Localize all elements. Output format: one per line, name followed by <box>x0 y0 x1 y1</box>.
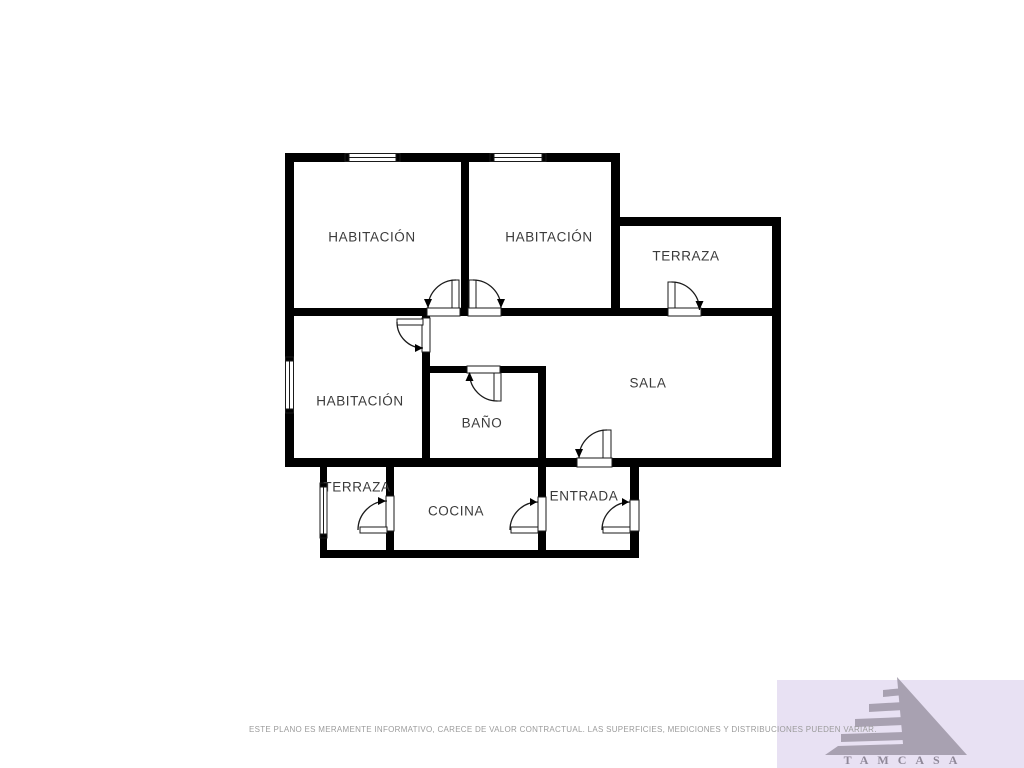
door-icon <box>468 280 505 316</box>
pyramid-shape <box>825 677 967 755</box>
wall-bedroom2-right <box>611 153 620 316</box>
door-icon <box>668 282 704 316</box>
wall-right <box>772 217 781 467</box>
wall-terrace-top <box>611 217 781 226</box>
wall-top <box>285 153 620 162</box>
wall-bottom-main <box>285 458 781 467</box>
floorplan-drawing <box>0 0 1024 768</box>
door-icon <box>424 280 460 316</box>
wall-bathroom-right <box>538 366 546 467</box>
wall-middle-horizontal <box>285 308 781 316</box>
window-icon <box>286 357 294 413</box>
room-label-terrace-lower: TERRAZA <box>323 480 390 495</box>
room-label-bedroom-left: HABITACIÓN <box>316 394 404 409</box>
window-icon <box>490 154 546 162</box>
logo-box: TAMCASA <box>777 680 1024 768</box>
door-icon <box>358 496 394 533</box>
room-label-entrance: ENTRADA <box>550 489 619 504</box>
window-icon <box>345 154 400 162</box>
room-label-kitchen: COCINA <box>428 504 484 519</box>
door-icon <box>466 366 502 401</box>
door-symbols <box>358 280 704 533</box>
floorplan-page: HABITACIÓN HABITACIÓN TERRAZA HABITACIÓN… <box>0 0 1024 768</box>
room-label-bathroom: BAÑO <box>462 416 503 431</box>
door-icon <box>510 497 546 533</box>
door-icon <box>575 430 612 467</box>
logo-brand-text: TAMCASA <box>777 753 1024 768</box>
disclaimer-text: ESTE PLANO ES MERAMENTE INFORMATIVO, CAR… <box>249 725 877 734</box>
room-label-terrace-upper: TERRAZA <box>652 249 719 264</box>
wall-annex-bottom <box>320 550 639 558</box>
wall-bedroom-divider <box>461 153 469 316</box>
room-label-bedroom-top-right: HABITACIÓN <box>505 230 593 245</box>
room-label-living-room: SALA <box>630 376 667 391</box>
walls <box>285 153 781 558</box>
door-icon <box>397 318 430 352</box>
room-label-bedroom-top-left: HABITACIÓN <box>328 230 416 245</box>
